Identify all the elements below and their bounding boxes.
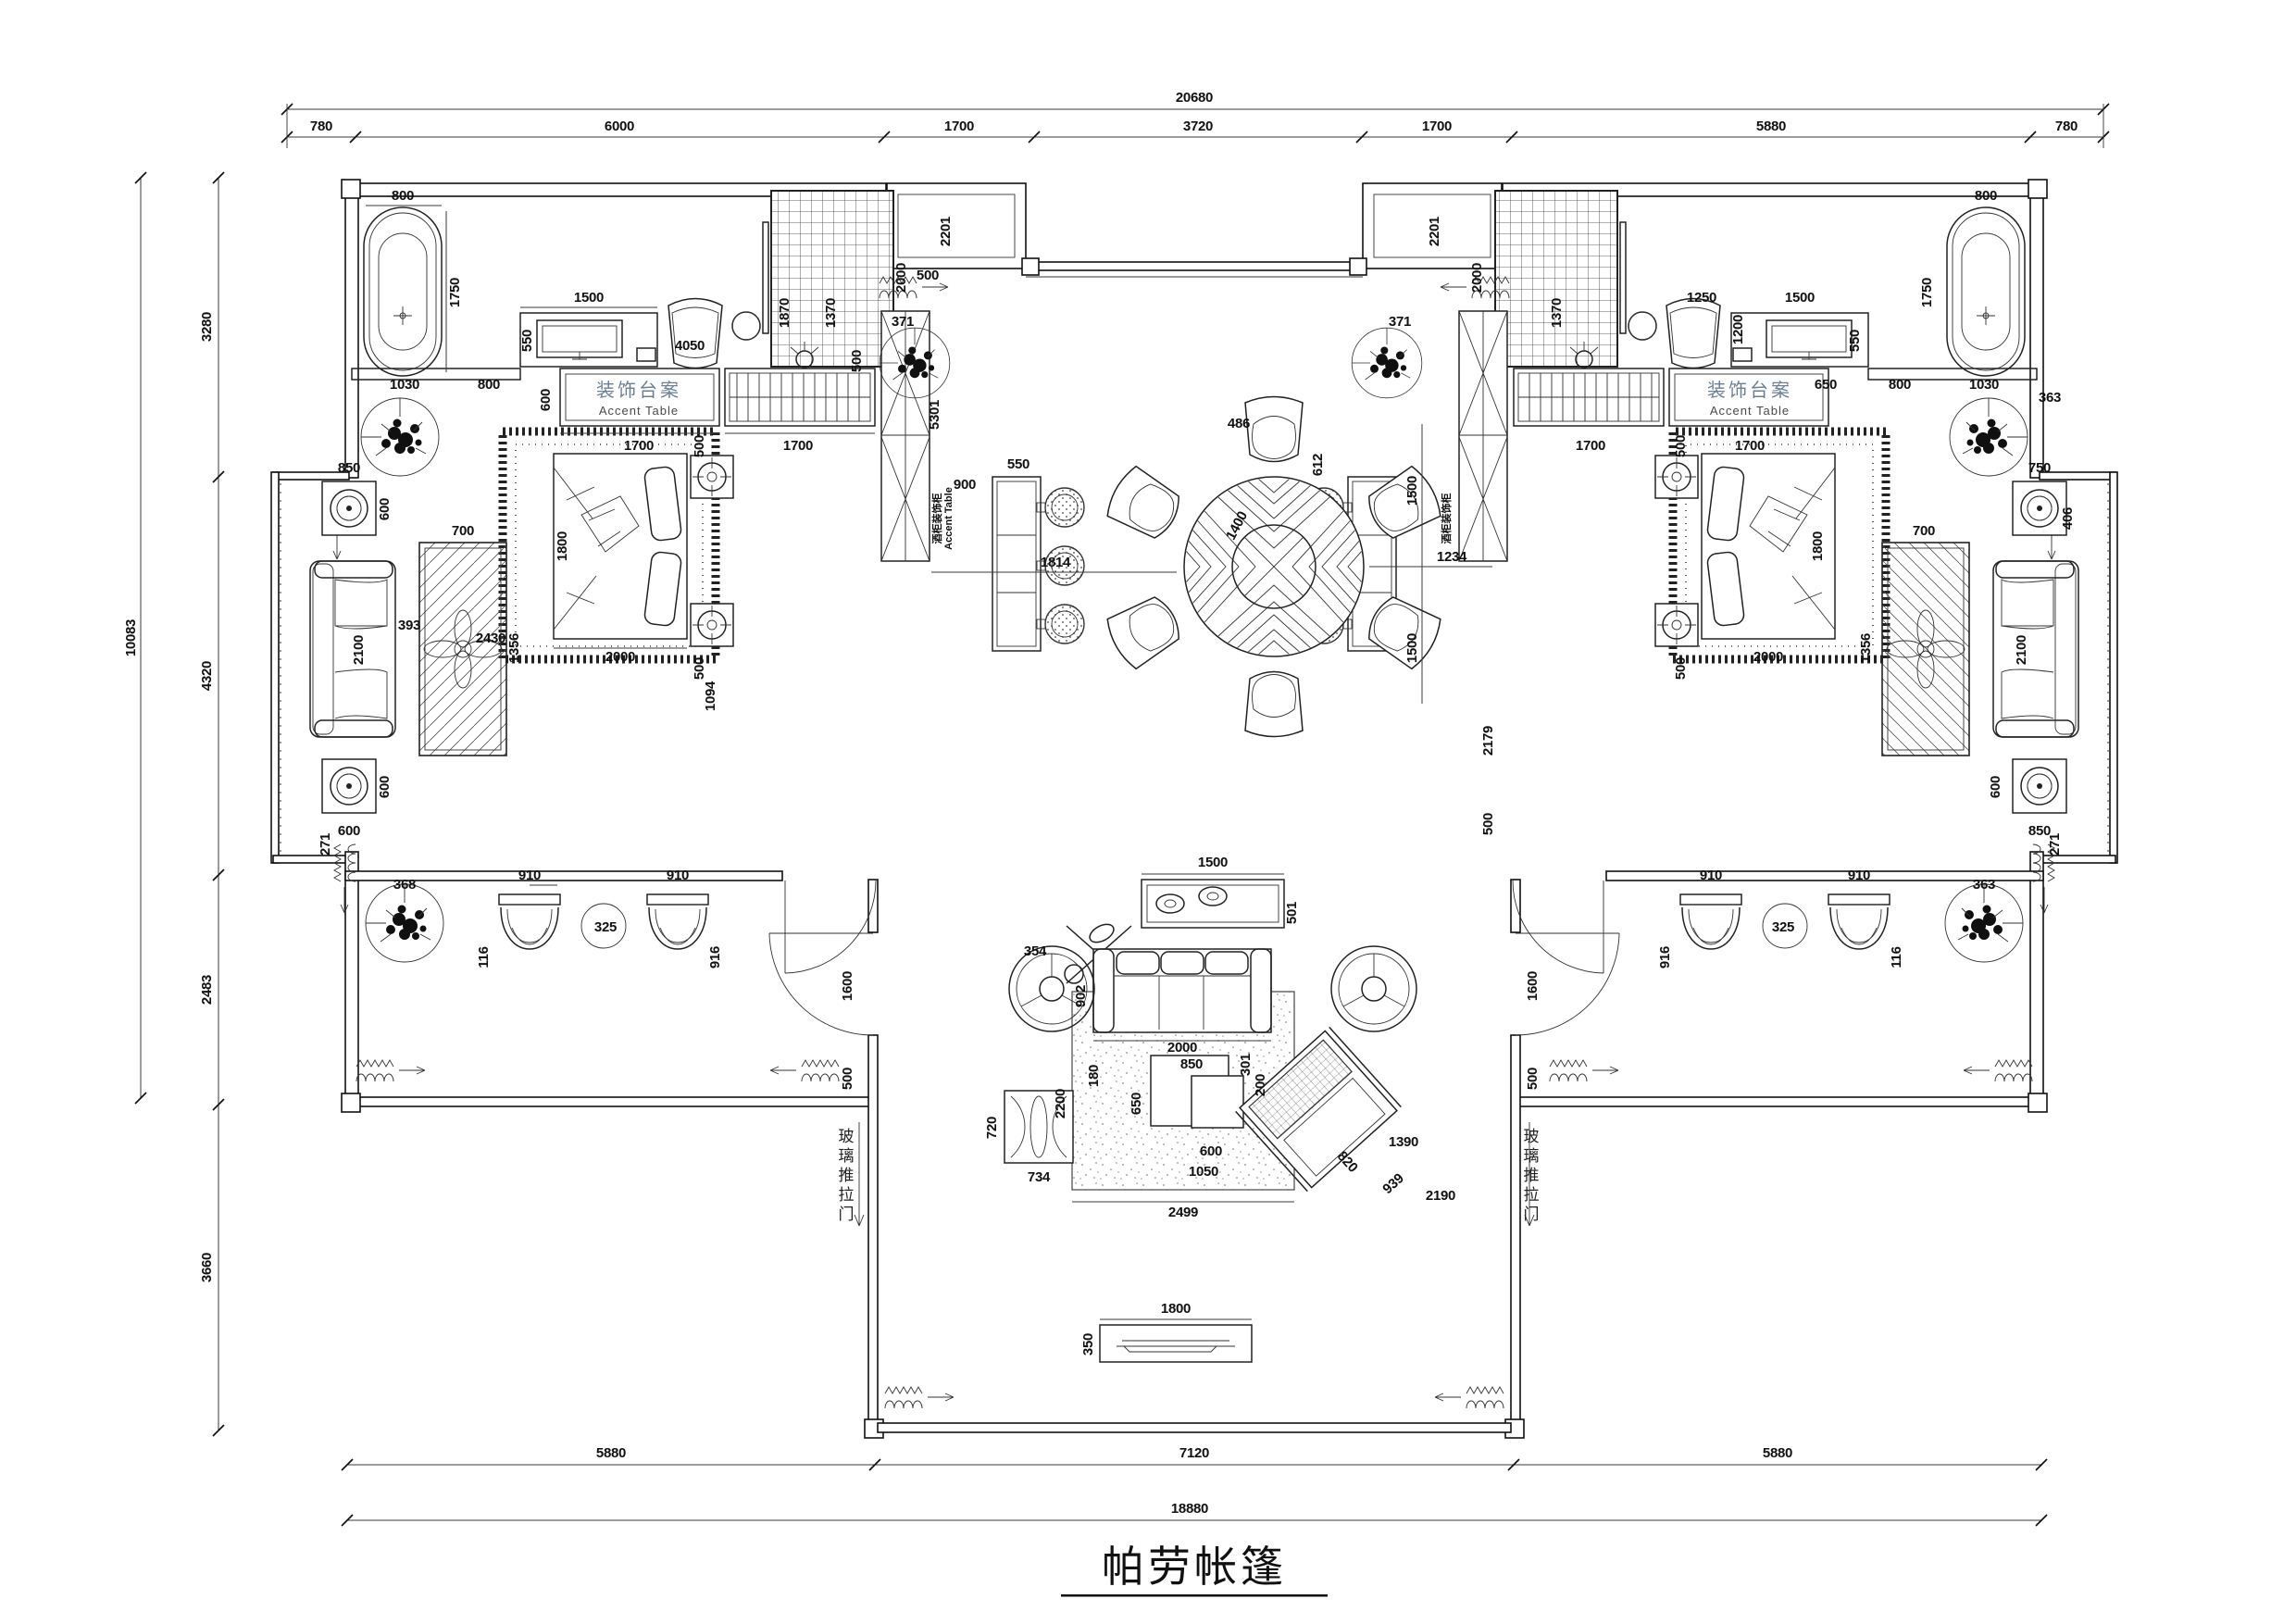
dim-tub-gap-r: 800 (1889, 377, 1911, 393)
dim-bay-b-r: 406 (2060, 507, 2076, 530)
dim-tbl-d: 1050 (1189, 1164, 1218, 1180)
label-accent-en-left: Accent Table (599, 404, 679, 418)
dim-dine-right: 1234 (1437, 549, 1467, 565)
dim-desk-d: 550 (519, 330, 535, 352)
dim-top-7: 780 (2055, 119, 2078, 134)
dim-rug-l: 2200 (1053, 1089, 1068, 1118)
dim-bed-l-r: 1800 (1810, 531, 1826, 561)
dim-door-w-l: 1600 (840, 971, 855, 1001)
dim-tub-w: 800 (392, 188, 414, 204)
dim-top-total: 20680 (1176, 90, 1213, 106)
central-structure (878, 258, 1511, 1432)
label-wine-cn-right: 酒柜装饰柜 (1440, 493, 1453, 544)
dim-bottom-2: 7120 (1179, 1445, 1209, 1461)
dim-top-1: 780 (310, 119, 332, 134)
dim-chair-d: 612 (1310, 454, 1326, 476)
dim-shower-h-r: 2000 (1469, 263, 1485, 293)
dim-tub-l: 1750 (447, 278, 463, 307)
dim-entry-h-r: 2201 (1427, 217, 1442, 246)
floor-plan-sheet: 20680 780 6000 1700 3720 1700 5880 780 1… (0, 0, 2296, 1624)
sheet-title: 帕劳帐篷 (1102, 1543, 1287, 1591)
dim-shower-h: 2000 (893, 263, 909, 293)
dim-tbl-e: 301 (1238, 1054, 1254, 1076)
dim-top-4: 3720 (1183, 119, 1213, 134)
dim-deck-chair-br: 910 (1700, 868, 1722, 883)
dim-side-t-b: 600 (377, 776, 393, 798)
dim-sofa-d: 902 (1073, 985, 1089, 1007)
dim-door-w-r: 1600 (1525, 971, 1541, 1001)
left-unit (271, 180, 1084, 1438)
dim-console-d: 501 (1284, 902, 1300, 924)
dim-tv-d: 350 (1080, 1333, 1096, 1355)
dim-rug-w: 2499 (1168, 1205, 1198, 1220)
label-accent-cn-right: 装饰台案 (1707, 380, 1792, 401)
label-wine-cn-left: 酒柜装饰柜 (930, 493, 943, 544)
dim-deck-d2: 916 (707, 946, 723, 968)
label-wine-en-left: Accent Table (943, 487, 955, 550)
dim-bottom-total: 18880 (1171, 1501, 1208, 1517)
dim-tub-gap: 800 (478, 377, 500, 393)
dim-door-off-l: 500 (840, 1068, 855, 1090)
dim-top-6: 5880 (1756, 119, 1786, 134)
dim-left-4: 3660 (199, 1253, 215, 1282)
dim-side-t-c: 600 (338, 823, 360, 839)
dim-nightstand-ar: 500 (1673, 435, 1689, 457)
dim-deck-d2-r: 916 (1657, 946, 1673, 968)
dim-dine-up: 1500 (1404, 476, 1420, 506)
dim-deck-gap: 325 (594, 919, 617, 935)
dim-right-d: 500 (1480, 813, 1496, 835)
dim-accent-w: 1700 (624, 438, 654, 454)
dim-tbl-c: 600 (1200, 1143, 1222, 1159)
floor-plan-drawing: 20680 780 6000 1700 3720 1700 5880 780 1… (0, 0, 2296, 1624)
tv-console (1100, 1325, 1252, 1362)
dim-bay-a-r: 750 (2028, 460, 2051, 476)
dim-plant-a-left: 371 (892, 314, 914, 330)
dim-bed-w-r: 2000 (1753, 649, 1783, 665)
dim-entry-off: 500 (917, 268, 939, 283)
dim-chair-w: 486 (1228, 416, 1250, 431)
dim-tbl-f: 180 (1086, 1065, 1102, 1087)
dim-nightstand-br: 500 (1673, 657, 1689, 680)
dim-desk-w: 1500 (574, 290, 604, 306)
entry-plants (880, 328, 1422, 398)
dim-top-2: 6000 (605, 119, 634, 134)
dim-dine-left: 1814 (1041, 555, 1071, 570)
dim-ward-c: 500 (849, 350, 865, 372)
dim-deck-chair-a: 910 (518, 868, 541, 883)
dim-side-t-w: 850 (338, 460, 360, 476)
dim-console-w: 1500 (1198, 855, 1228, 870)
dim-ct-w-r: 700 (1913, 523, 1935, 539)
title-block: 帕劳帐篷 (1061, 1543, 1328, 1597)
dim-door-off-r: 500 (1525, 1068, 1541, 1090)
dim-deck-gap-r: 325 (1772, 919, 1794, 935)
dim-plant-a-right: 371 (1389, 314, 1411, 330)
dim-screen-h: 5301 (927, 400, 942, 430)
dim-bottom-1: 5880 (596, 1445, 626, 1461)
dim-bay-c-r: 271 (2047, 833, 2063, 856)
dim-sofa-w: 2000 (1167, 1040, 1197, 1056)
dim-bed-l: 1800 (555, 531, 570, 561)
dim-lamp-r: 354 (1024, 943, 1047, 959)
dim-bar-gap: 900 (954, 477, 976, 493)
dim-deck-chair-b: 910 (667, 868, 689, 883)
dim-tbl-b: 650 (1129, 1093, 1144, 1115)
dim-sofa-gap: 393 (398, 618, 420, 633)
label-accent-en-right: Accent Table (1710, 404, 1790, 418)
dim-tbl-a: 850 (1180, 1056, 1203, 1072)
dim-ct-l: 1356 (506, 633, 522, 663)
dim-side-t-r: 600 (1988, 776, 2003, 798)
dim-bed-w: 2000 (605, 649, 635, 665)
dim-ct-w: 700 (452, 523, 474, 539)
dim-chair-code: 4050 (675, 338, 705, 354)
top-dimension-chain: 20680 780 6000 1700 3720 1700 5880 780 (281, 90, 2109, 148)
dim-right-c: 2179 (1480, 726, 1496, 756)
dim-left-2: 4320 (199, 661, 215, 691)
dim-rug-r: 2190 (1426, 1188, 1455, 1204)
dim-sofa-l: 2100 (351, 635, 367, 665)
dim-tub-off-r: 1030 (1969, 377, 1999, 393)
dim-bed-off: 1094 (703, 681, 718, 711)
dim-left-total: 10083 (123, 619, 139, 656)
dim-sofa-l-r: 2100 (2014, 635, 2029, 665)
dim-to-sofa: 2430 (476, 631, 505, 646)
dim-deck-d1: 116 (476, 946, 492, 968)
dim-accent-w-r: 1700 (1735, 438, 1765, 454)
label-glass-door-right: 玻璃推拉门 (1521, 1128, 1540, 1225)
dim-left-3: 2483 (199, 975, 215, 1005)
dim-plant-b-t: 363 (1973, 877, 1995, 893)
dim-bar-w: 550 (1007, 456, 1029, 472)
dim-bay-c-l: 271 (318, 833, 333, 856)
dim-tub-off: 1030 (390, 377, 419, 393)
dim-tbl-g: 200 (1253, 1074, 1268, 1096)
dim-right-a: 1250 (1687, 290, 1716, 306)
dim-side-t-a: 600 (377, 498, 393, 520)
dim-entry-h: 2201 (938, 217, 954, 246)
dim-rack-w-r: 1700 (1576, 438, 1605, 454)
right-unit (1304, 180, 2117, 1438)
living-room (1004, 880, 1416, 1362)
dim-bench-w: 734 (1028, 1169, 1051, 1185)
dim-ward-b: 1370 (823, 298, 839, 328)
dim-dine-down: 1500 (1404, 633, 1420, 663)
dim-top-5: 1700 (1422, 119, 1452, 134)
dim-right-b: 1200 (1730, 315, 1746, 344)
dim-tv-w: 1800 (1161, 1301, 1191, 1317)
dim-top-3: 1700 (944, 119, 974, 134)
dim-lounge-d: 939 (1379, 1170, 1406, 1197)
dim-ward-b-r: 1370 (1549, 298, 1565, 328)
bottom-dimension-chain: 5880 7120 5880 18880 (342, 1445, 2047, 1526)
dim-desk-w-r: 1500 (1785, 290, 1815, 306)
dim-deck-chair-ar: 910 (1848, 868, 1870, 883)
left-dimension-chain: 10083 3280 4320 2483 3660 (123, 172, 224, 1436)
dim-nightstand-a: 500 (692, 435, 707, 457)
dim-ct-l-r: 1356 (1858, 633, 1874, 663)
dim-bench-d: 720 (984, 1117, 1000, 1139)
dim-tub-w-r: 800 (1975, 188, 1997, 204)
title-underline (1061, 1594, 1328, 1597)
label-accent-cn-left: 装饰台案 (596, 380, 681, 401)
dim-shelf-r: 650 (1815, 377, 1837, 393)
dim-lounge-off: 1390 (1389, 1134, 1418, 1150)
dim-plant-b-r: 363 (2039, 390, 2061, 406)
dim-left-1: 3280 (199, 312, 215, 342)
dim-tub-l-r: 1750 (1919, 278, 1935, 307)
dim-bottom-3: 5880 (1763, 1445, 1792, 1461)
dim-nightstand-b: 500 (692, 657, 707, 680)
dim-deck-d1-r: 116 (1889, 946, 1904, 968)
dim-ward-a: 1870 (777, 298, 792, 328)
dim-rack-w: 1700 (783, 438, 813, 454)
dim-plant-t: 368 (393, 877, 416, 893)
dim-counter-d: 600 (538, 389, 554, 411)
label-glass-door-left: 玻璃推拉门 (836, 1128, 855, 1225)
dim-desk-d-r: 550 (1847, 330, 1863, 352)
